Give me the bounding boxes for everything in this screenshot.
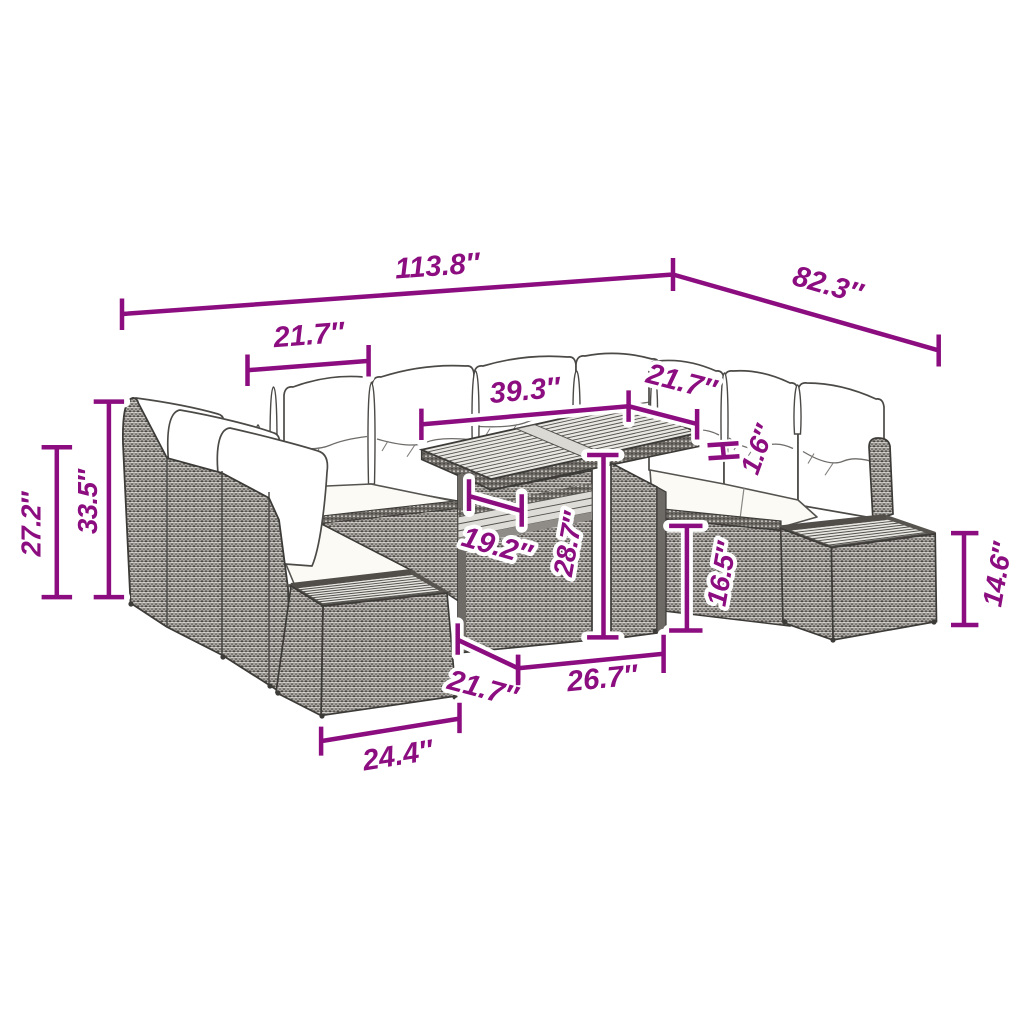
svg-text:27.2″: 27.2″ bbox=[16, 490, 47, 557]
svg-text:39.3″: 39.3″ bbox=[488, 372, 563, 410]
svg-text:113.8″: 113.8″ bbox=[394, 247, 483, 285]
svg-text:33.5″: 33.5″ bbox=[72, 468, 103, 534]
svg-text:21.7″: 21.7″ bbox=[271, 317, 347, 355]
